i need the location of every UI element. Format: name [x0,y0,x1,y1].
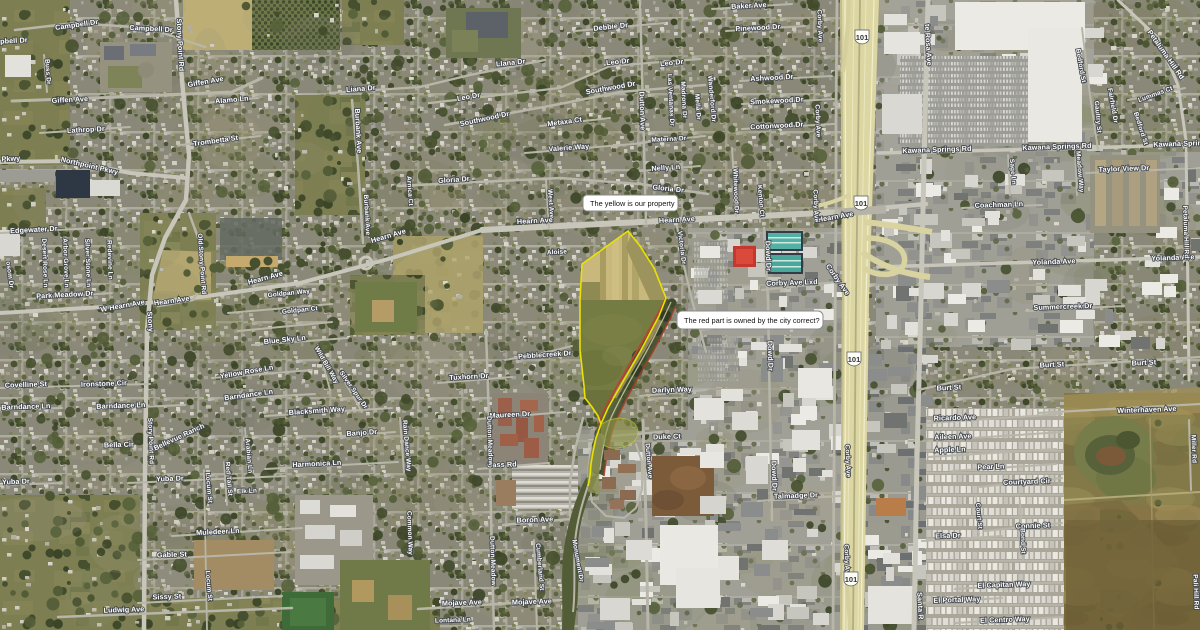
svg-text:Elsa Dr: Elsa Dr [935,531,961,541]
svg-text:Giffen Ave: Giffen Ave [51,94,88,105]
svg-text:Hearn Ave: Hearn Ave [517,215,553,226]
svg-text:Ironstone Cir: Ironstone Cir [81,378,127,389]
svg-text:Yolanda Ave: Yolanda Ave [1032,256,1075,267]
svg-text:Aloise: Aloise [547,248,568,256]
svg-text:101: 101 [855,199,868,208]
svg-text:Burt St: Burt St [936,382,962,392]
svg-text:Gable St: Gable St [157,549,188,559]
svg-text:Burt St: Burt St [1039,359,1065,369]
svg-text:Corby Ave: Corby Ave [811,189,819,222]
svg-text:Courtyard Cir: Courtyard Cir [1003,476,1051,487]
svg-text:El Centro Way: El Centro Way [980,614,1030,625]
svg-text:Stony: Stony [145,311,156,332]
svg-text:The red part is owned by the c: The red part is owned by the city correc… [684,316,820,325]
svg-text:Ricardo Ave: Ricardo Ave [934,412,977,422]
svg-text:Santa R: Santa R [915,592,925,621]
svg-text:Boron Ave: Boron Ave [516,514,553,524]
svg-text:Bella Cir: Bella Cir [104,439,134,449]
svg-text:The yellow is our property: The yellow is our property [590,199,675,208]
svg-text:Coachman Ln: Coachman Ln [974,199,1023,210]
svg-text:Dowd Dr: Dowd Dr [765,341,775,372]
svg-text:Barndance Ln: Barndance Ln [96,400,145,411]
svg-text:Corby Ave Lxd: Corby Ave Lxd [766,277,818,288]
svg-text:Dowd Dr: Dowd Dr [763,241,773,272]
svg-text:Mojave Ave: Mojave Ave [512,596,552,606]
svg-text:Dutton Ave: Dutton Ave [637,91,647,130]
svg-text:Taylor View Dr: Taylor View Dr [1098,163,1149,174]
svg-text:101: 101 [845,575,858,584]
svg-text:Aileen Ave: Aileen Ave [934,431,972,441]
svg-text:Burt St: Burt St [1131,357,1157,367]
svg-text:Yuba Dr: Yuba Dr [2,477,30,487]
svg-text:Corby Ave: Corby Ave [843,444,851,477]
svg-text:Lontana Ln: Lontana Ln [435,616,471,624]
svg-text:101: 101 [848,355,861,364]
svg-text:Redevine Ln: Redevine Ln [105,240,113,280]
svg-text:Baker Ave: Baker Ave [731,0,767,11]
svg-text:Duke Ct: Duke Ct [653,432,682,442]
svg-text:Hearn Ave: Hearn Ave [659,214,695,225]
svg-text:Elk Ln: Elk Ln [237,488,257,496]
svg-text:Mojave Ave: Mojave Ave [442,597,482,607]
svg-text:Dowd Dr: Dowd Dr [769,461,779,492]
svg-text:Apple Ln: Apple Ln [934,444,966,454]
svg-text:Covelline St: Covelline St [5,379,48,389]
svg-text:pbell Dr: pbell Dr [0,35,28,45]
svg-text:Ludwig Ave: Ludwig Ave [103,604,144,614]
svg-text:Pali Hill Rd: Pali Hill Rd [1191,574,1199,609]
svg-text:Yuba Dr: Yuba Dr [156,474,184,484]
svg-text:Corby Ave: Corby Ave [813,104,821,137]
svg-text:Sissy St: Sissy St [152,591,182,601]
svg-text:Bond St: Bond St [1019,528,1027,555]
svg-text:Corby Ave: Corby Ave [815,9,823,42]
svg-text:101: 101 [856,33,869,42]
svg-text:Barndance Ln: Barndance Ln [1,401,50,412]
svg-text:Darlyn Way: Darlyn Way [652,384,692,394]
svg-text:Talmadge Dr: Talmadge Dr [774,490,818,501]
svg-text:Pear Ln: Pear Ln [977,462,1004,472]
svg-text:Miller Rd: Miller Rd [1190,435,1198,464]
svg-text:Kawana Spring: Kawana Spring [1153,138,1200,149]
svg-text:El Portal Way: El Portal Way [933,594,980,605]
svg-text:El Capitan Way: El Capitan Way [977,579,1030,590]
svg-text:Pkwy: Pkwy [1,154,20,164]
